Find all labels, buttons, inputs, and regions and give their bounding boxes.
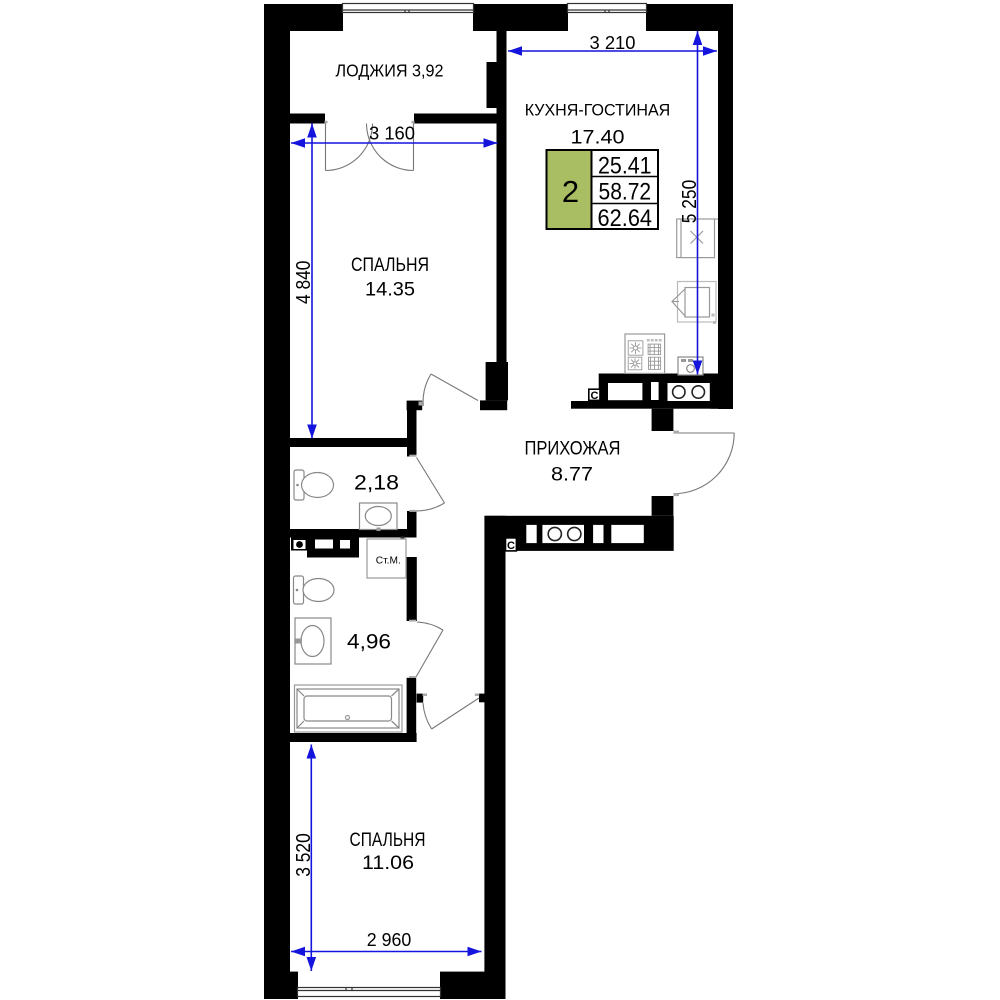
svg-text:С: С — [507, 540, 515, 552]
svg-text:ПРИХОЖАЯ: ПРИХОЖАЯ — [525, 438, 621, 460]
svg-text:58.72: 58.72 — [599, 179, 652, 206]
svg-text:5 250: 5 250 — [679, 180, 701, 224]
svg-text:4 840: 4 840 — [293, 261, 315, 305]
svg-text:25.41: 25.41 — [598, 153, 652, 180]
svg-text:Ст.М.: Ст.М. — [376, 555, 401, 567]
svg-text:3 160: 3 160 — [369, 124, 415, 144]
svg-text:С: С — [591, 390, 599, 402]
svg-text:ЛОДЖИЯ 3,92: ЛОДЖИЯ 3,92 — [336, 61, 444, 81]
svg-text:8.77: 8.77 — [551, 464, 593, 486]
svg-text:4,96: 4,96 — [347, 631, 391, 654]
svg-text:2,18: 2,18 — [354, 472, 399, 495]
svg-text:11.06: 11.06 — [362, 852, 414, 874]
svg-text:СПАЛЬНЯ: СПАЛЬНЯ — [350, 830, 426, 851]
svg-text:2 960: 2 960 — [367, 930, 412, 950]
svg-text:17.40: 17.40 — [571, 127, 625, 149]
svg-text:СПАЛЬНЯ: СПАЛЬНЯ — [351, 255, 429, 276]
svg-text:3 210: 3 210 — [590, 33, 636, 53]
svg-text:КУХНЯ-ГОСТИНАЯ: КУХНЯ-ГОСТИНАЯ — [525, 101, 671, 120]
svg-text:14.35: 14.35 — [365, 279, 415, 301]
svg-text:3 520: 3 520 — [293, 833, 315, 877]
svg-text:2: 2 — [562, 174, 579, 209]
svg-text:62.64: 62.64 — [598, 205, 653, 232]
